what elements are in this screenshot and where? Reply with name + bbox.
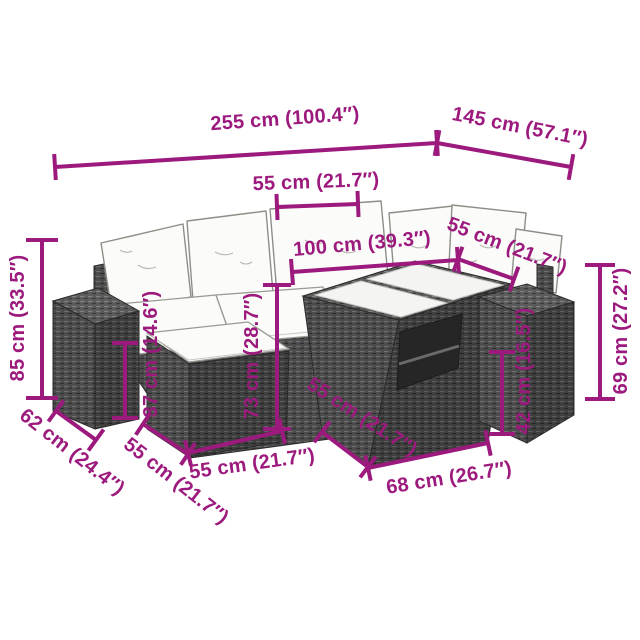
footstool [147,322,289,457]
back-cushion [187,211,273,301]
dim-label-seat-width: 55 cm (21.7″) [252,170,379,194]
dim-label-table-height: 42 cm (16.5″) [514,308,534,435]
furniture-illustration [0,0,640,640]
dim-label-seat-height: 37 cm (14.6″) [141,291,161,418]
dim-label-side-table-height: 69 cm (27.2″) [611,268,631,395]
dim-label-backrest-height: 73 cm (28.7″) [242,293,262,420]
dim-label-total-height: 85 cm (33.5″) [8,255,28,382]
product-dimensions-image: 255 cm (100.4″) 145 cm (57.1″) 55 cm (21… [0,0,640,640]
dim-line-total-width [54,130,438,180]
